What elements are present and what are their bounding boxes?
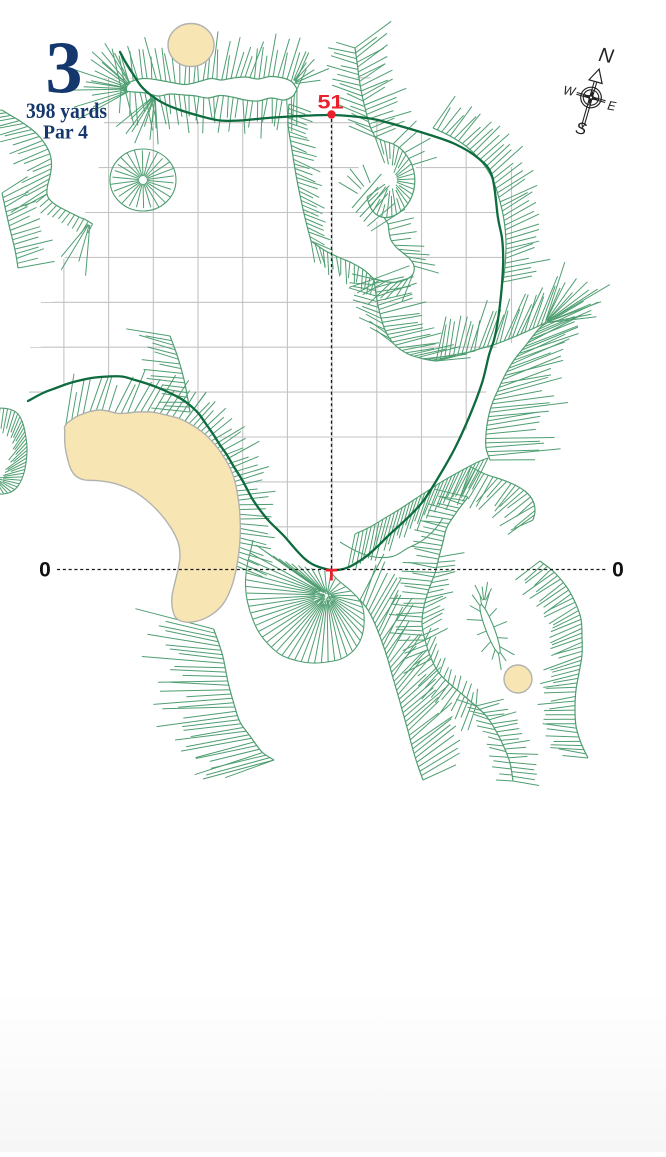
svg-text:0: 0	[39, 559, 51, 582]
svg-text:398 yards: 398 yards	[26, 98, 107, 123]
svg-text:0: 0	[612, 559, 624, 582]
svg-text:Par 4: Par 4	[43, 122, 88, 144]
svg-text:51: 51	[318, 92, 344, 114]
